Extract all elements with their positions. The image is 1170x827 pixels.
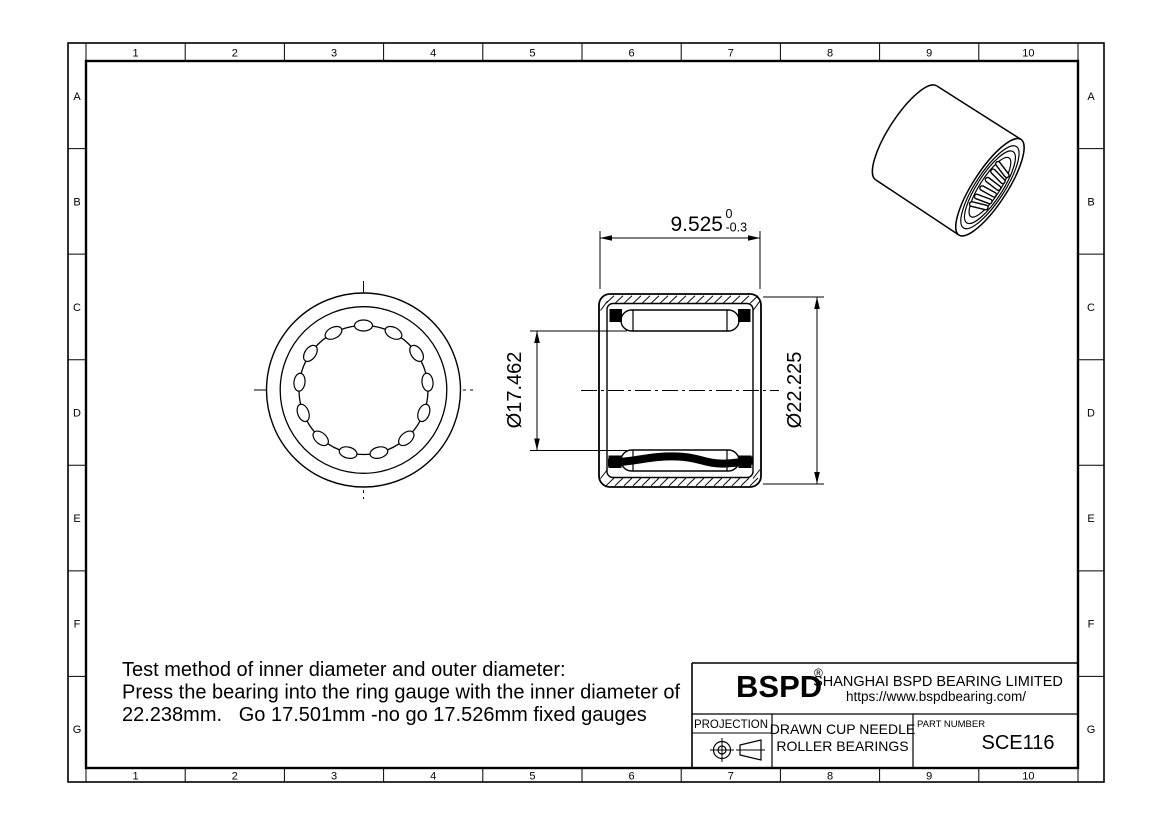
cage-section-top-right <box>738 309 751 322</box>
arrowhead <box>814 297 820 309</box>
grid-row-label-right: D <box>1087 408 1095 420</box>
grid-row-label-left: G <box>73 724 82 736</box>
note-line-1: Test method of inner diameter and outer … <box>122 659 566 681</box>
grid-row-label-left: E <box>73 513 80 525</box>
grid-row-label-left: A <box>73 91 81 103</box>
grid-row-label-left: C <box>73 302 81 314</box>
cage-section-bottom-left <box>609 456 622 469</box>
isometric-view <box>861 76 1035 245</box>
grid-column-label-top: 6 <box>629 48 635 60</box>
projection-symbol-icon <box>710 738 765 762</box>
grid-column-label-top: 4 <box>430 48 436 60</box>
front-face-outer-ellipse <box>945 130 1036 244</box>
dim-outer-value: Ø22.225 <box>784 352 806 429</box>
grid-column-label-bottom: 3 <box>331 771 337 783</box>
grid-row-label-right: C <box>1087 302 1095 314</box>
dim-width-value: 9.525 <box>670 213 723 236</box>
dimension-width: 9.525 0 -0.3 <box>600 207 760 289</box>
grid-row-label-right: A <box>1087 91 1095 103</box>
cage-section-top-left <box>610 309 623 322</box>
grid-column-label-bottom: 1 <box>133 771 139 783</box>
cage-section-bottom-right <box>739 456 752 469</box>
brand-logo: BSPD <box>736 669 822 704</box>
grid-column-label-bottom: 7 <box>728 771 734 783</box>
grid-column-label-top: 10 <box>1022 48 1034 60</box>
part-number-value: SCE116 <box>981 732 1054 754</box>
dim-width-tol-lower: -0.3 <box>726 221 748 235</box>
back-silhouette-arc <box>861 77 936 180</box>
drawing-canvas: 1122334455667788991010AABBCCDDEEFFGG <box>0 0 1170 827</box>
body-tangent-top <box>937 85 1021 140</box>
title-block: BSPD ® SHANGHAI BSPD BEARING LIMITED htt… <box>692 663 1078 768</box>
grid-column-label-top: 3 <box>331 48 337 60</box>
grid-column-label-bottom: 10 <box>1022 771 1034 783</box>
top-roller <box>621 310 739 331</box>
grid-column-label-top: 5 <box>529 48 535 60</box>
arrowhead <box>814 472 820 484</box>
grid-column-label-bottom: 2 <box>232 771 238 783</box>
note-line-3: 22.238mm. Go 17.501mm -no go 17.526mm fi… <box>122 704 647 726</box>
dim-width-tol-upper: 0 <box>726 207 733 221</box>
arrowhead <box>600 235 612 241</box>
body-tangent-bottom <box>875 180 959 235</box>
website-url: https://www.bspdbearing.com/ <box>846 689 1026 704</box>
grid-row-label-right: E <box>1087 513 1094 525</box>
roller-end-bump <box>355 320 373 331</box>
grid-column-label-bottom: 4 <box>430 771 436 783</box>
grid-column-label-top: 8 <box>827 48 833 60</box>
grid-column-label-top: 1 <box>133 48 139 60</box>
grid-column-label-bottom: 9 <box>926 771 932 783</box>
grid-row-label-right: B <box>1087 196 1094 208</box>
grid-column-label-bottom: 8 <box>827 771 833 783</box>
section-view <box>581 294 779 487</box>
grid-column-label-bottom: 5 <box>529 771 535 783</box>
grid-row-label-right: F <box>1088 619 1095 631</box>
company-name: SHANGHAI BSPD BEARING LIMITED <box>813 674 1063 690</box>
part-number-label: PART NUMBER <box>917 719 985 730</box>
front-view <box>254 281 473 499</box>
arrowhead <box>748 235 760 241</box>
grid-row-label-left: D <box>73 408 81 420</box>
grid-column-label-top: 2 <box>232 48 238 60</box>
grid-column-label-top: 9 <box>926 48 932 60</box>
grid-column-label-bottom: 6 <box>629 771 635 783</box>
grid-row-label-right: G <box>1087 724 1096 736</box>
note-line-2: Press the bearing into the ring gauge wi… <box>122 682 681 704</box>
product-name-line2: ROLLER BEARINGS <box>776 738 908 754</box>
projection-label: PROJECTION <box>694 719 768 731</box>
arrowhead <box>534 439 540 451</box>
grid-column-label-top: 7 <box>728 48 734 60</box>
grid-row-label-left: F <box>74 619 81 631</box>
drawing-sheet: 1122334455667788991010AABBCCDDEEFFGG <box>0 0 1170 827</box>
dim-bore-value: Ø17.462 <box>504 352 526 429</box>
grid-row-label-left: B <box>73 196 80 208</box>
arrowhead <box>534 331 540 343</box>
test-method-note: Test method of inner diameter and outer … <box>122 659 681 726</box>
product-name-line1: DRAWN CUP NEEDLE <box>770 721 915 737</box>
